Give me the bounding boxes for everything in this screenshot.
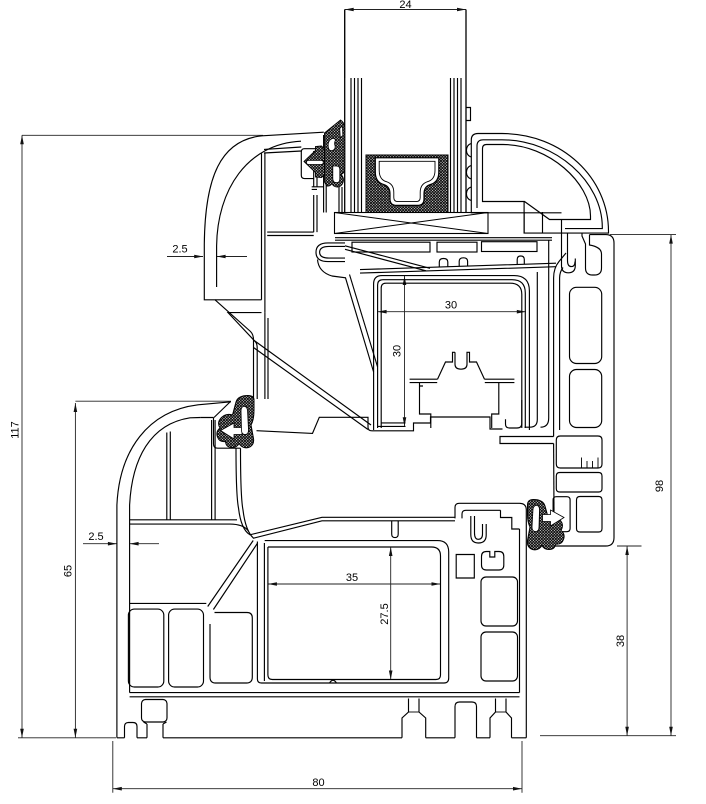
svg-text:2.5: 2.5 — [172, 244, 187, 256]
svg-text:30: 30 — [392, 345, 404, 357]
svg-text:38: 38 — [615, 635, 627, 647]
svg-text:98: 98 — [654, 480, 666, 492]
svg-text:24: 24 — [399, 0, 411, 11]
svg-text:80: 80 — [312, 777, 324, 789]
svg-text:2.5: 2.5 — [88, 531, 103, 543]
svg-text:27.5: 27.5 — [379, 603, 391, 624]
svg-text:35: 35 — [346, 572, 358, 584]
svg-text:30: 30 — [445, 299, 457, 311]
svg-text:65: 65 — [63, 565, 75, 577]
svg-text:117: 117 — [10, 421, 22, 439]
